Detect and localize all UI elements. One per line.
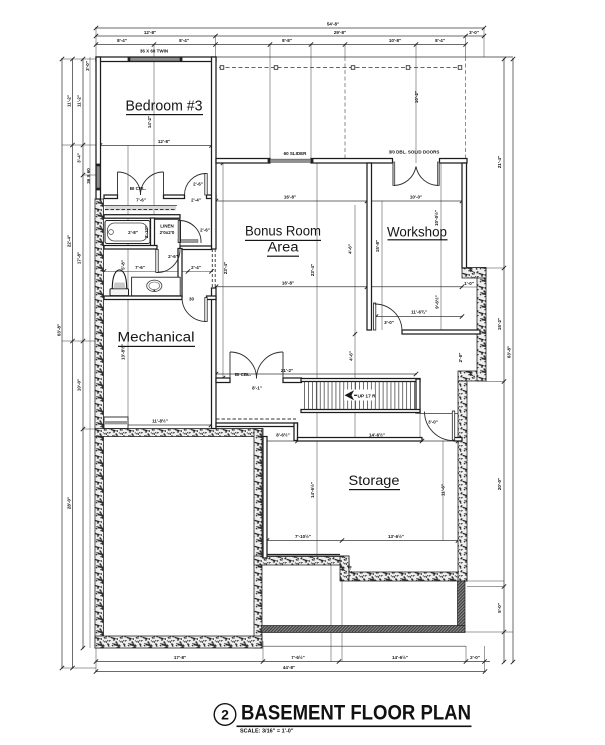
svg-text:Storage: Storage — [349, 473, 400, 489]
svg-text:29'-8": 29'-8" — [334, 30, 346, 35]
svg-text:12'-8": 12'-8" — [144, 30, 156, 35]
svg-text:BASEMENT FLOOR PLAN: BASEMENT FLOOR PLAN — [241, 701, 471, 725]
svg-text:8'-1": 8'-1" — [252, 386, 262, 391]
svg-text:10'-8": 10'-8" — [389, 38, 401, 43]
svg-text:7'-6½": 7'-6½" — [291, 654, 304, 660]
svg-text:8'-6½": 8'-6½" — [276, 431, 289, 437]
svg-text:13'-8½": 13'-8½" — [120, 344, 126, 360]
svg-text:16'-8": 16'-8" — [284, 195, 296, 200]
svg-text:10'-2": 10'-2" — [414, 91, 419, 103]
svg-text:21'-4": 21'-4" — [497, 156, 502, 168]
svg-text:2'-0": 2'-0" — [348, 564, 353, 574]
svg-text:8'-4": 8'-4" — [179, 38, 189, 43]
svg-text:3'-0": 3'-0" — [469, 30, 479, 35]
svg-text:2'-6": 2'-6" — [200, 228, 210, 233]
svg-text:11'-2": 11'-2" — [77, 95, 82, 107]
svg-text:22'-4": 22'-4" — [67, 235, 72, 247]
svg-text:2'-0": 2'-0" — [470, 655, 480, 660]
svg-text:2'-6": 2'-6" — [193, 182, 203, 187]
svg-text:2'-4": 2'-4" — [191, 265, 201, 270]
svg-text:28'-0": 28'-0" — [67, 497, 72, 509]
svg-text:7'-6": 7'-6" — [135, 265, 145, 270]
svg-text:9'-6½": 9'-6½" — [433, 295, 439, 308]
svg-text:23'-4": 23'-4" — [310, 264, 315, 276]
svg-text:Bonus Room: Bonus Room — [245, 224, 321, 240]
svg-text:3'-0": 3'-0" — [85, 61, 90, 71]
svg-text:3'-4": 3'-4" — [77, 153, 82, 163]
svg-text:14'-6½": 14'-6½" — [369, 431, 385, 437]
svg-text:BI CBL.: BI CBL. — [235, 372, 251, 377]
svg-text:8'-4": 8'-4" — [435, 38, 445, 43]
svg-text:11'-8½": 11'-8½" — [152, 418, 168, 424]
svg-text:2'-0": 2'-0" — [458, 353, 463, 363]
svg-text:3/0 DBL. SOLID DOORS: 3/0 DBL. SOLID DOORS — [389, 150, 440, 155]
svg-text:14'-6½": 14'-6½" — [392, 654, 408, 660]
svg-text:54'-8": 54'-8" — [327, 22, 339, 27]
svg-text:8'-4": 8'-4" — [117, 38, 127, 43]
svg-text:LINEN: LINEN — [160, 224, 174, 229]
svg-text:36 X 60 TWIN: 36 X 60 TWIN — [140, 49, 168, 54]
svg-text:12'-8": 12'-8" — [158, 139, 170, 144]
svg-text:3'-0": 3'-0" — [384, 320, 394, 325]
svg-text:15'-8": 15'-8" — [375, 240, 380, 252]
svg-text:17'-8": 17'-8" — [174, 655, 186, 660]
svg-text:5'-8": 5'-8" — [121, 260, 126, 270]
svg-text:UP 17 R: UP 17 R — [358, 394, 377, 400]
svg-text:8'-8": 8'-8" — [282, 38, 292, 43]
svg-text:11'-6": 11'-6" — [441, 484, 446, 496]
svg-text:SCALE: 3/16" = 1'-0": SCALE: 3/16" = 1'-0" — [240, 729, 294, 735]
svg-text:7'-10½": 7'-10½" — [295, 533, 311, 539]
svg-text:13'-6½": 13'-6½" — [388, 533, 404, 539]
svg-text:Bedroom #3: Bedroom #3 — [126, 99, 203, 115]
svg-text:BI CBL.: BI CBL. — [130, 186, 146, 191]
svg-text:21'-2": 21'-2" — [281, 368, 293, 373]
svg-text:Area: Area — [268, 240, 299, 256]
svg-text:2'-8": 2'-8" — [128, 230, 138, 235]
svg-text:10'-0": 10'-0" — [410, 195, 422, 200]
svg-text:7'-6": 7'-6" — [136, 198, 146, 203]
svg-text:10'-0": 10'-0" — [77, 379, 82, 391]
svg-text:15'-2": 15'-2" — [497, 318, 502, 330]
svg-text:14'-6½": 14'-6½" — [309, 482, 315, 498]
svg-text:11'-6¾": 11'-6¾" — [411, 309, 427, 315]
svg-text:36 X 60: 36 X 60 — [86, 168, 91, 184]
svg-text:1'-0": 1'-0" — [464, 281, 474, 286]
svg-text:30: 30 — [189, 297, 195, 302]
svg-text:60 SLIDER: 60 SLIDER — [284, 151, 308, 156]
svg-text:2: 2 — [221, 707, 229, 723]
svg-text:2'0x2'0: 2'0x2'0 — [160, 230, 175, 235]
svg-text:2'-10": 2'-10" — [144, 226, 149, 238]
svg-text:3'-0": 3'-0" — [428, 420, 438, 425]
svg-text:23'-4": 23'-4" — [223, 262, 228, 274]
svg-text:16'-8": 16'-8" — [282, 281, 294, 286]
svg-text:2'-6": 2'-6" — [168, 254, 178, 259]
svg-text:63'-8": 63'-8" — [57, 324, 62, 336]
svg-text:20'-0": 20'-0" — [497, 478, 502, 490]
svg-text:11'-2": 11'-2" — [67, 95, 72, 107]
svg-text:14'-2": 14'-2" — [147, 116, 152, 128]
svg-text:5'-0": 5'-0" — [497, 603, 502, 613]
svg-text:44'-8": 44'-8" — [283, 665, 295, 670]
svg-text:4'-6": 4'-6" — [349, 351, 354, 361]
svg-text:2'-4": 2'-4" — [191, 198, 201, 203]
svg-text:Mechanical: Mechanical — [118, 330, 195, 346]
svg-text:10'-0½": 10'-0½" — [433, 210, 439, 226]
svg-text:4'-6": 4'-6" — [348, 244, 353, 254]
svg-text:17'-8": 17'-8" — [77, 252, 82, 264]
svg-text:63'-8": 63'-8" — [507, 346, 512, 358]
